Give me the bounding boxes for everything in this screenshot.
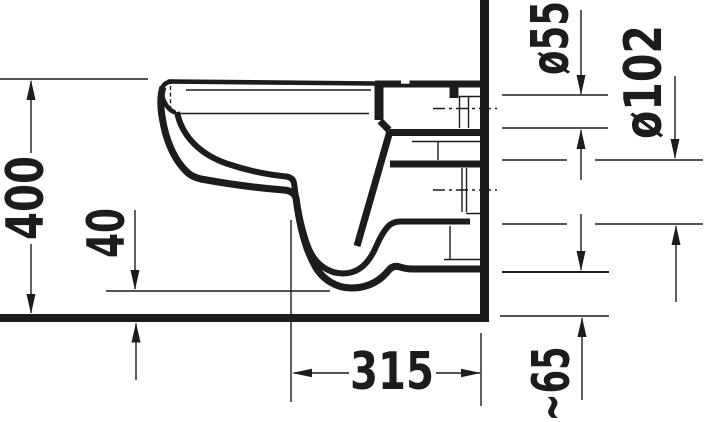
toilet-technical-drawing: 400 40 315 ø55 ø102 bbox=[0, 0, 705, 422]
seat-hinge-notch bbox=[401, 79, 410, 84]
dim-label-400: 400 bbox=[0, 156, 56, 240]
dimension-underside-gap: ~65 bbox=[500, 214, 609, 422]
dimension-rim-height: 400 bbox=[0, 80, 56, 314]
dim-label-40: 40 bbox=[77, 208, 137, 258]
seat-profile bbox=[162, 82, 374, 114]
bowl-inner-profile bbox=[177, 112, 470, 274]
arrowhead-up bbox=[27, 80, 36, 100]
arrowhead-up bbox=[672, 225, 681, 245]
dim-label-o55: ø55 bbox=[521, 1, 581, 75]
dim-label-o102: ø102 bbox=[614, 25, 674, 139]
arrowhead-up bbox=[132, 323, 141, 343]
dim-label-65: ~65 bbox=[522, 347, 582, 422]
drawing-canvas: 400 40 315 ø55 ø102 bbox=[0, 0, 705, 422]
outlet-detail bbox=[390, 142, 487, 260]
arrowhead-right bbox=[461, 369, 481, 378]
rear-bar-to-diagonal bbox=[380, 121, 389, 130]
arrowhead-left bbox=[292, 369, 312, 378]
arrowhead-down bbox=[671, 139, 680, 159]
arrowhead-down bbox=[577, 75, 586, 95]
arrowhead-down bbox=[27, 294, 36, 314]
dimension-flush-inlet-diameter: ø55 bbox=[502, 1, 608, 180]
arrowhead-down bbox=[131, 270, 140, 290]
seat-top-line bbox=[169, 82, 374, 84]
dim-label-315: 315 bbox=[350, 342, 434, 402]
bowl-outer-profile bbox=[161, 87, 486, 288]
toilet-section bbox=[161, 79, 497, 289]
rear-block bbox=[375, 79, 487, 142]
dimension-depth-315: 315 bbox=[291, 220, 481, 406]
arrowhead-up bbox=[578, 317, 587, 337]
arrowhead-up bbox=[577, 129, 586, 149]
arrowhead-down bbox=[577, 251, 586, 271]
dimension-front-clearance: 40 bbox=[77, 208, 330, 380]
